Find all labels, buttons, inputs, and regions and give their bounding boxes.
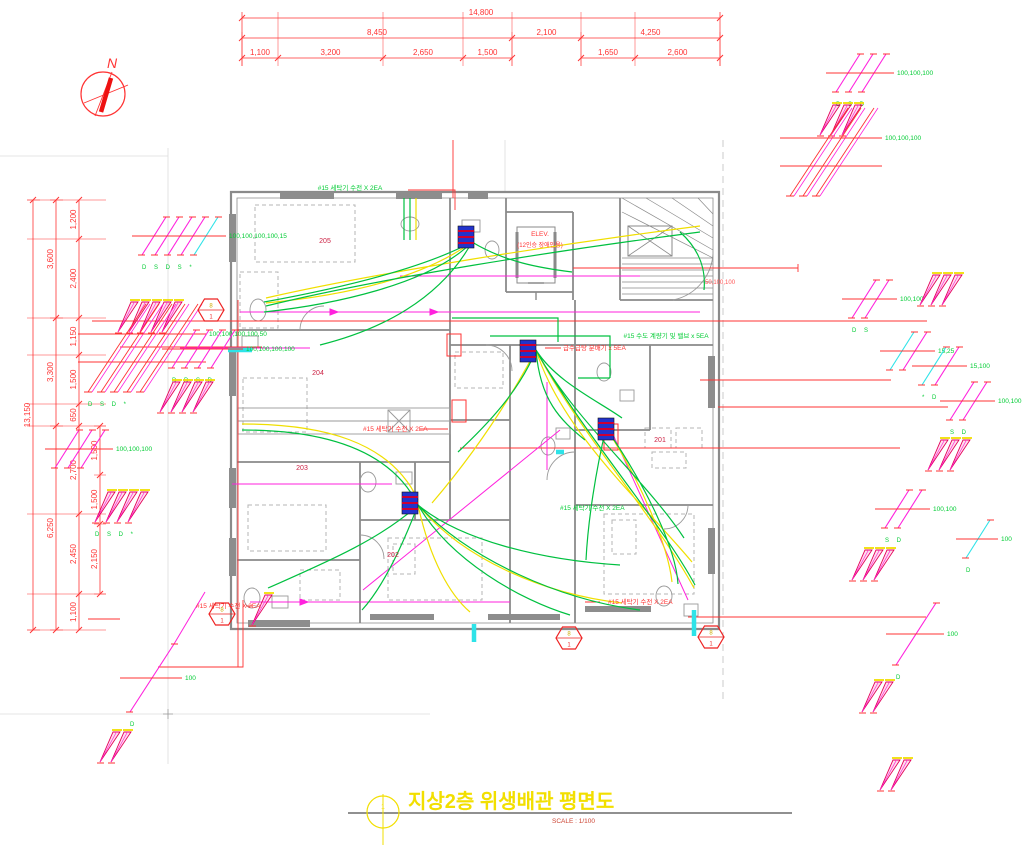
svg-text:1: 1 (567, 643, 571, 649)
pipe-riser-cluster (859, 680, 895, 713)
pipe-riser-cluster (157, 380, 215, 413)
riser-type-letters: D (896, 675, 903, 681)
outer-walls (231, 192, 719, 629)
annotation-label: #15 세탁기 수전 X 2EA (196, 601, 261, 610)
dimension-chain: 1,1003,2002,6501,500 (239, 12, 515, 66)
floor-plan-svg: N 14,8008,4502,1004,2501,1003,2002,6501,… (0, 0, 1024, 845)
annotation-label: #15 세탁기 수전 X 2EA (318, 183, 383, 192)
pipe-riser-cluster: 100,100S D (875, 490, 957, 544)
dimension-value: 1,100 (69, 601, 78, 622)
dimension-value: 3,300 (46, 361, 55, 382)
building-plan (229, 192, 719, 629)
riser-size-label: 100 (947, 631, 958, 638)
drawing-title: 지상2층 위생배관 평면도 (408, 790, 614, 813)
riser-type-letters: D S D S * (142, 265, 195, 271)
dimension-chain: 8,4502,1004,250 (239, 28, 723, 66)
pipe-riser-cluster: D S D * (92, 490, 150, 538)
riser-size-label: 100,100 (900, 296, 924, 303)
pipe-riser-cluster: 15,100* D (912, 347, 990, 401)
dimension-chain: 1,6502,600 (578, 12, 723, 66)
pipe-riser-cluster (849, 548, 896, 581)
riser-size-label: 100,100,100 (116, 446, 153, 453)
pipe-riser-cluster (877, 758, 913, 791)
water-manifold (598, 418, 614, 440)
dimension-chain: 3,6003,3006,250 (46, 197, 63, 633)
pipe-riser-cluster: 100D (120, 644, 196, 728)
riser-size-label: 100 (185, 675, 196, 682)
pipe-riser-cluster: 100,100,100D S D (826, 54, 934, 108)
pipe-riser-cluster: 100,100S D (940, 382, 1022, 436)
annotation-label: 202 (387, 552, 399, 559)
dimension-value: 2,100 (536, 28, 557, 37)
title-bubble-number: 1 (381, 804, 385, 811)
annotation-label: #15 세탁기 수전 X 2EA (363, 424, 428, 433)
pipe-riser-cluster: 100,100,100,100,15D S D S * (132, 217, 287, 271)
svg-text:8: 8 (709, 631, 713, 637)
dimension-value: 1,500 (90, 489, 99, 510)
dimension-value: 1,100 (250, 48, 271, 57)
annotation-label: #15 세탁기 수전 X 2EA (608, 597, 673, 606)
riser-size-label: 15,100 (970, 363, 990, 370)
dimension-value: 13,150 (23, 402, 32, 427)
dimension-value: 2,600 (667, 48, 688, 57)
dimension-value: 1,500 (69, 369, 78, 390)
riser-size-label: 100,100,100 (885, 135, 922, 142)
stairs (622, 198, 713, 294)
water-manifold (402, 492, 418, 514)
pipe-riser-cluster: 100,100,100 (45, 430, 153, 468)
dimension-value: 6,250 (46, 517, 55, 538)
drawing-scale: SCALE : 1/100 (552, 818, 595, 825)
dimension-value: 8,450 (367, 28, 388, 37)
dimension-value: 3,200 (320, 48, 341, 57)
pipe-riser-cluster: 100,100D S (842, 280, 924, 334)
title-block: 1 지상2층 위생배관 평면도 SCALE : 1/100 (348, 790, 792, 845)
riser-size-label: 100,100,100 (897, 70, 934, 77)
dimension-value: 4,250 (640, 28, 661, 37)
dimension-value: 2,150 (90, 548, 99, 569)
annotation-label: (12인승 장애인용) (517, 241, 562, 249)
annotation-label: ELEV. (531, 231, 549, 238)
riser-size-label: 100,100 (933, 506, 957, 513)
annotation-label: 204 (312, 370, 324, 377)
riser-size-label: 15,25 (938, 348, 955, 355)
annotation-label: 203 (296, 465, 308, 472)
riser-type-letters: D S (852, 328, 871, 334)
window-sills (229, 192, 715, 627)
dimension-value: 1,500 (477, 48, 498, 57)
riser-type-letters: S D (950, 430, 969, 436)
svg-text:1: 1 (220, 619, 224, 625)
riser-size-label: 100,100,100,100,15 (229, 233, 287, 240)
drain-hexagon-symbol: 81 (198, 299, 224, 321)
riser-size-label: 100,100 (998, 398, 1022, 405)
dimension-value: 1,500 (90, 440, 99, 461)
dimension-chain: 13,150 (23, 197, 40, 633)
pipe-riser-cluster: 100,100,100,100D D S D (162, 330, 295, 384)
water-manifold (458, 226, 474, 248)
bath-fixtures (242, 217, 698, 616)
pipe-riser-cluster (925, 438, 972, 471)
pipe-riser-cluster: 100D (886, 603, 958, 681)
pipe-riser-cluster (917, 273, 964, 306)
pipe-riser-cluster (97, 730, 133, 763)
annotation-label: 50,100,100 (705, 280, 736, 286)
riser-type-letters: S D (885, 538, 904, 544)
riser-size-label: 100,100,100,100 (246, 346, 295, 353)
riser-type-letters: D S D * (88, 402, 129, 408)
annotation-label: 201 (654, 437, 666, 444)
water-manifold (520, 340, 536, 362)
annotation-label: 205 (319, 238, 331, 245)
svg-text:8: 8 (209, 304, 213, 310)
compass-north-label: N (107, 55, 118, 71)
dimension-chain: 14,800 (239, 8, 723, 66)
drain-hexagon-symbol: 81 (556, 627, 582, 649)
dimension-value: 2,700 (69, 459, 78, 480)
dimension-value: 650 (69, 408, 78, 422)
pipe-riser-cluster: 100D (956, 520, 1012, 574)
dimension-value: 14,800 (469, 8, 494, 17)
riser-size-label: 100 (1001, 536, 1012, 543)
dimension-value: 3,600 (46, 248, 55, 269)
dimension-value: 1,650 (598, 48, 619, 57)
annotation-label: #15 세탁기 수전 X 2EA (560, 503, 625, 512)
annotation-label: #15 수도 계량기 및 밸브 x 5EA (623, 331, 709, 340)
yellow-pipes (242, 198, 700, 612)
riser-type-letters: D S D * (95, 532, 136, 538)
dimension-value: 1,150 (69, 326, 78, 347)
riser-type-letters: D (966, 568, 973, 574)
dimension-value: 2,650 (413, 48, 434, 57)
dimension-value: 2,450 (69, 543, 78, 564)
generated-annotations: 100,100,100D S D100,100,100100,100D S15,… (45, 54, 1022, 791)
dimension-value: 1,200 (69, 209, 78, 230)
svg-text:8: 8 (567, 632, 571, 638)
dimension-value: 2,400 (69, 268, 78, 289)
svg-text:1: 1 (209, 315, 213, 321)
north-compass: N (81, 55, 128, 116)
riser-type-letters: D (130, 722, 137, 728)
annotation-label: 급수급탕 분배기 x 5EA (563, 343, 626, 352)
riser-type-letters: * D (922, 395, 939, 401)
svg-text:1: 1 (709, 642, 713, 648)
drawing-sheet: N 14,8008,4502,1004,2501,1003,2002,6501,… (0, 0, 1024, 845)
